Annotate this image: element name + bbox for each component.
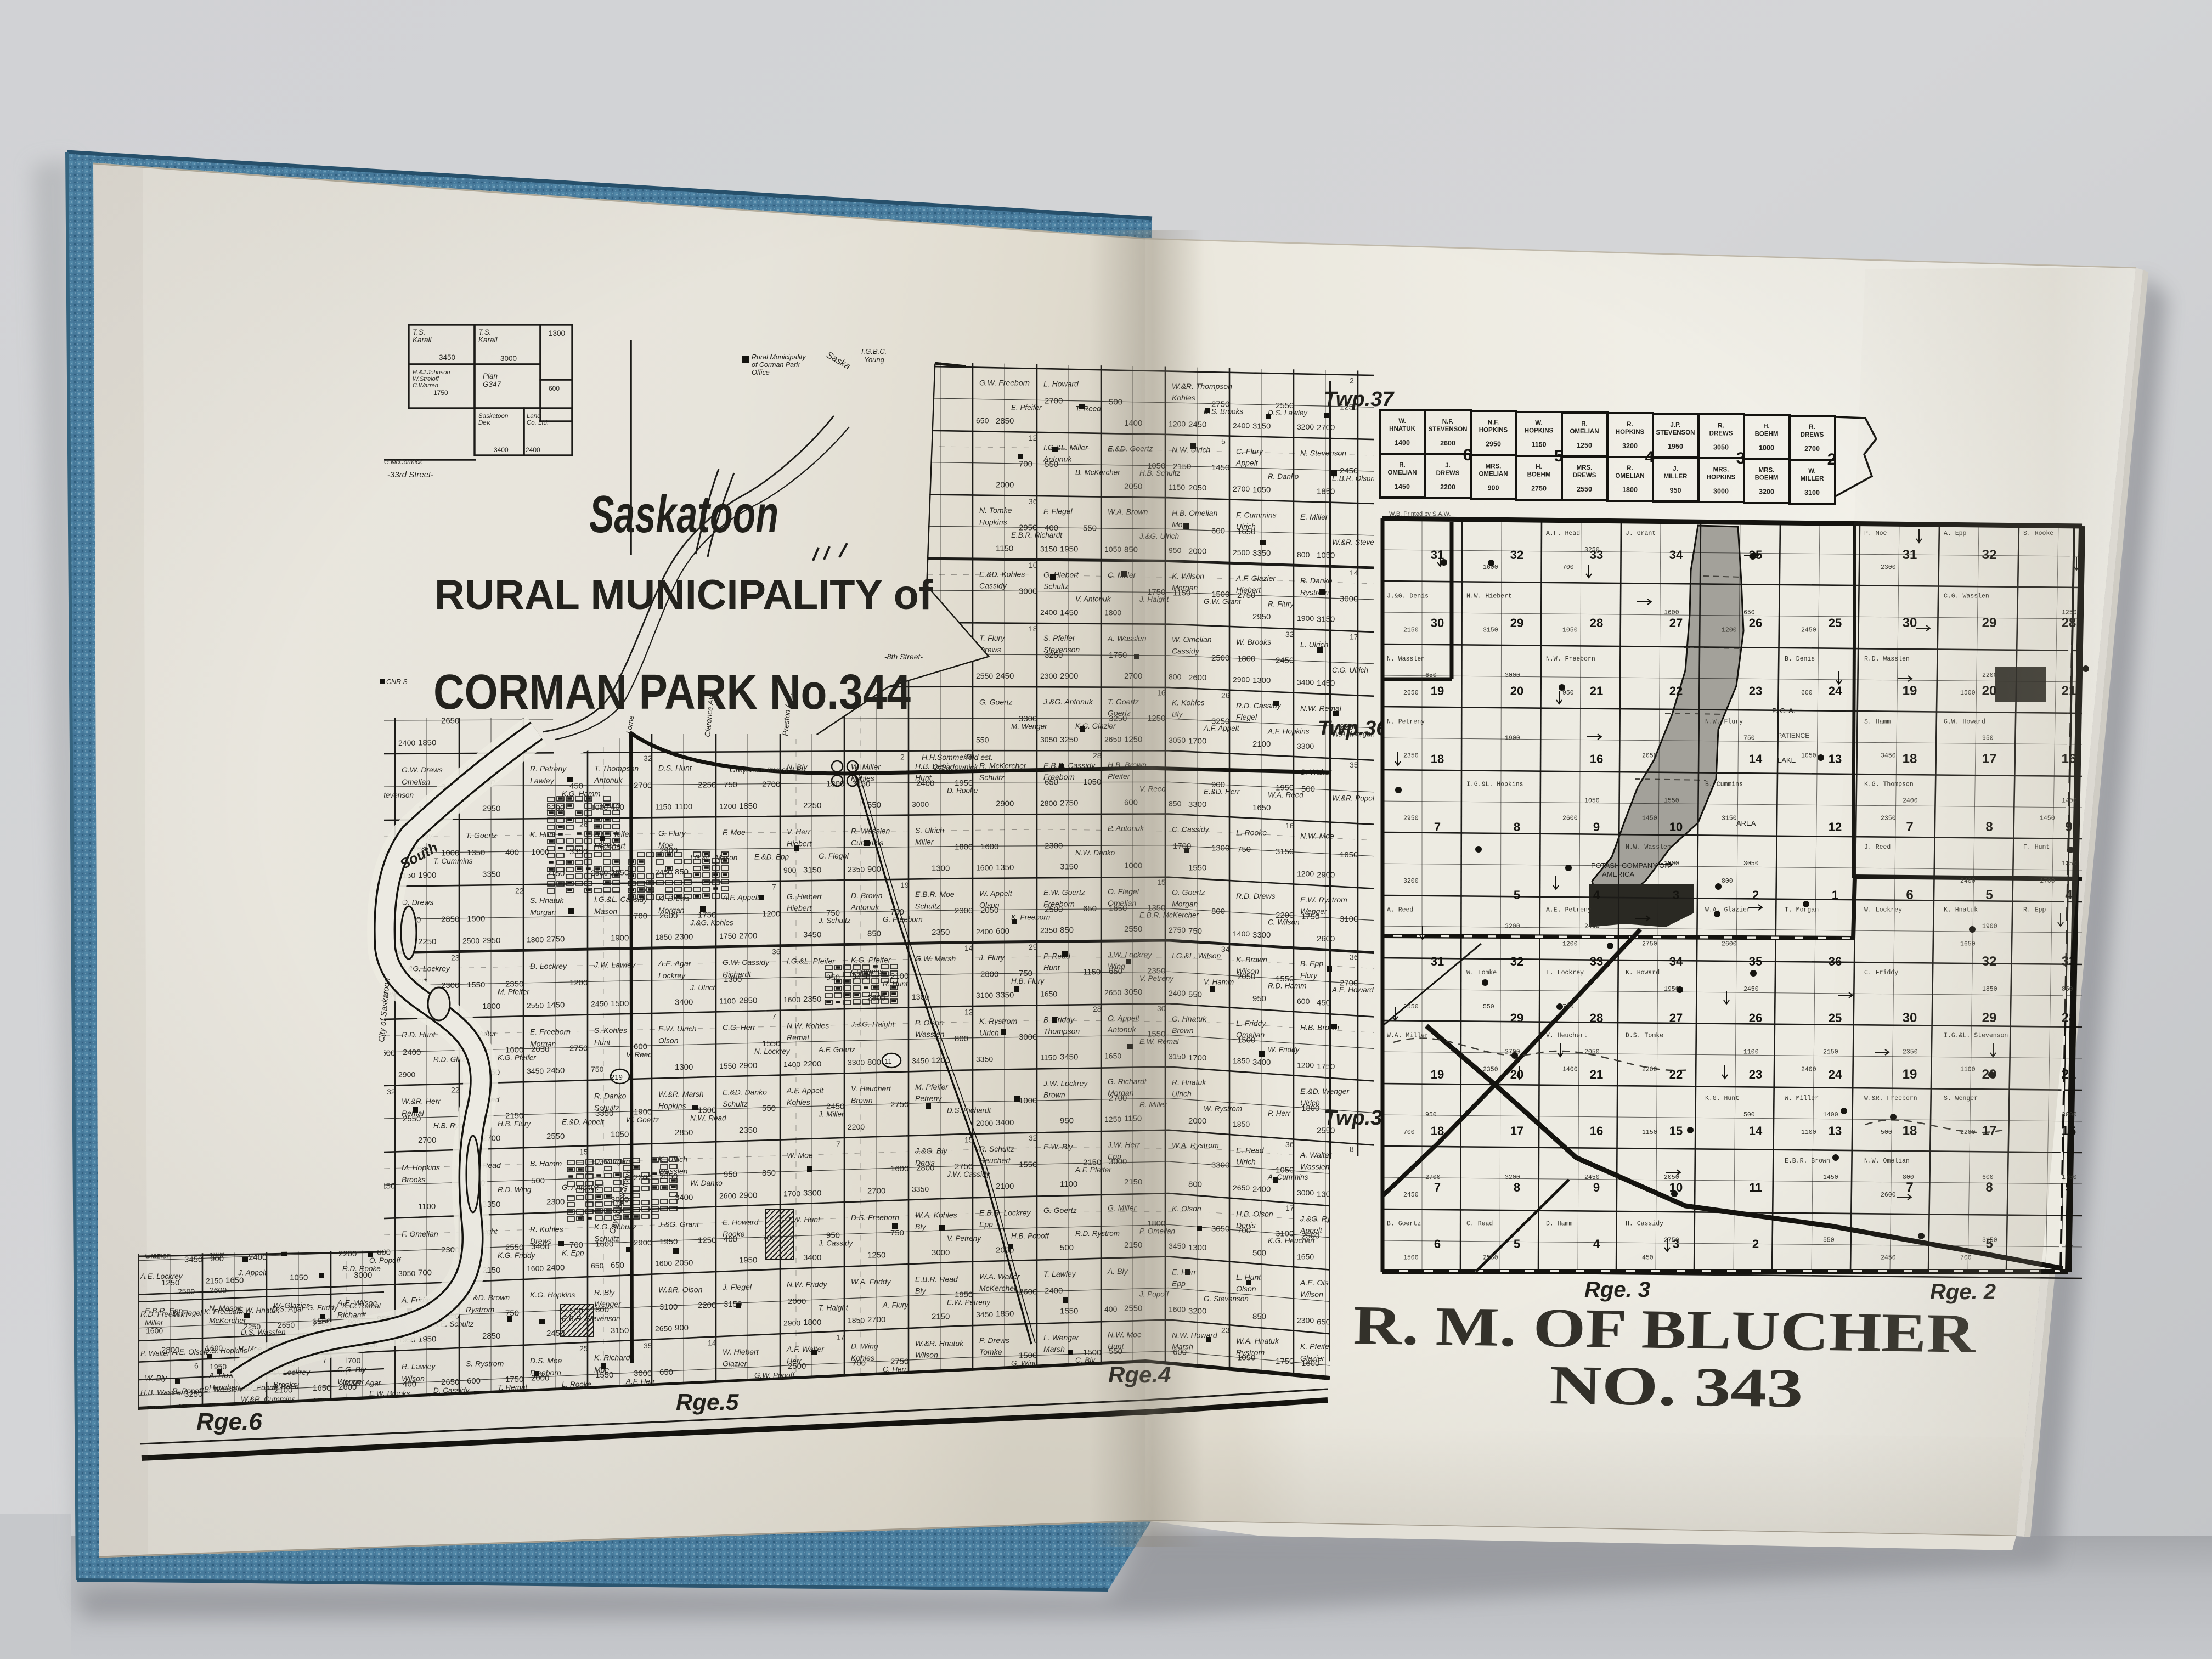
svg-text:9: 9 [2065, 1180, 2072, 1195]
svg-text:3000: 3000 [2062, 1111, 2077, 1119]
svg-text:21: 21 [2062, 1067, 2076, 1082]
svg-text:16: 16 [2062, 1124, 2076, 1138]
svg-text:4: 4 [2065, 1237, 2073, 1251]
svg-text:1700: 1700 [2062, 1174, 2077, 1181]
